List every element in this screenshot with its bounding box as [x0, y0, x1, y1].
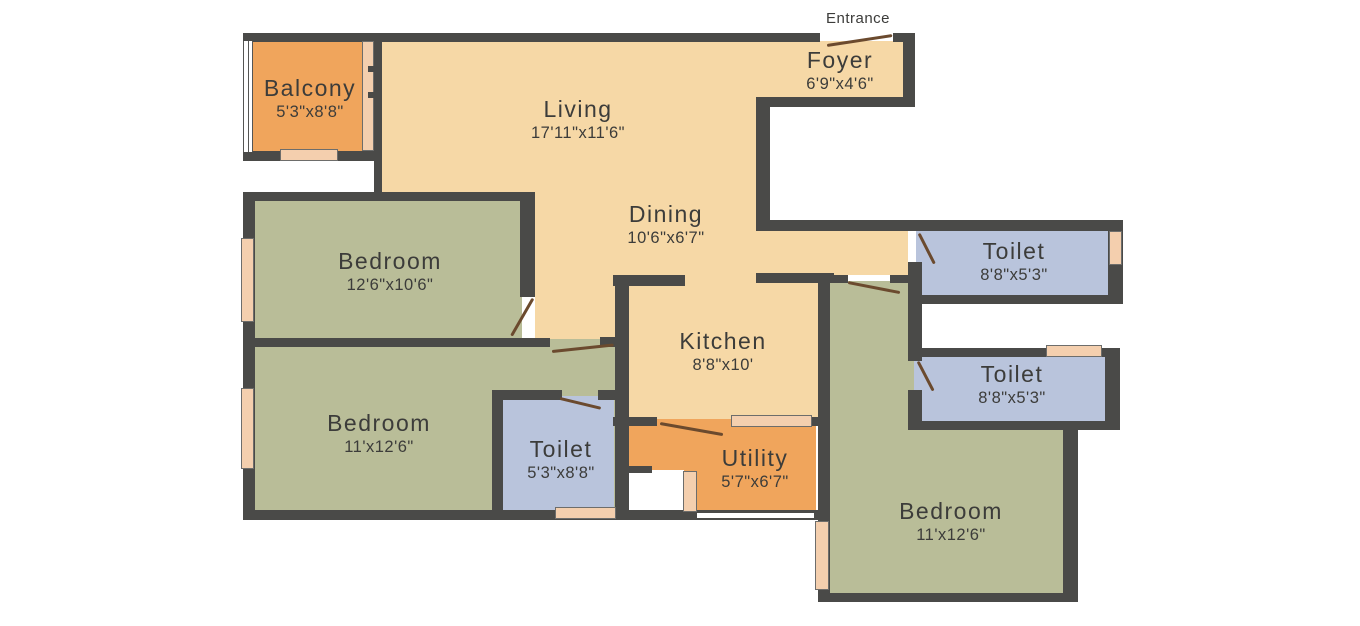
wall-segment	[1063, 430, 1078, 602]
room-label-bedroom2: Bedroom 11'x12'6"	[327, 412, 431, 458]
corridor-floor	[756, 228, 908, 275]
room-dims: 5'3"x8'8"	[264, 102, 356, 123]
floor-plan: Entrance Balcony 5'3"x8'8" Living 17'11"…	[0, 0, 1360, 626]
room-dims: 10'6"x6'7"	[627, 228, 704, 249]
bedroom3-window	[815, 521, 829, 590]
room-name: Kitchen	[679, 330, 766, 353]
room-name: Utility	[721, 447, 788, 470]
room-name: Balcony	[264, 77, 356, 100]
balcony-sill-window	[280, 149, 338, 161]
wall-segment	[903, 33, 915, 107]
toiletmid-window	[555, 507, 616, 519]
room-label-toilet1: Toilet 8'8"x5'3"	[980, 240, 1047, 286]
utility-bottom-window	[697, 511, 814, 520]
passage-floor	[535, 200, 615, 340]
room-name: Toilet	[980, 240, 1047, 263]
room-dims: 8'8"x5'3"	[978, 388, 1045, 409]
room-label-bedroom3: Bedroom 11'x12'6"	[899, 500, 1003, 546]
toilet2-top-window	[1046, 345, 1102, 357]
room-label-living: Living 17'11"x11'6"	[531, 98, 625, 144]
wall-segment	[908, 421, 1120, 430]
wall-segment	[243, 192, 535, 201]
room-dims: 17'11"x11'6"	[531, 123, 625, 144]
wall-segment	[243, 338, 550, 347]
room-dims: 5'7"x6'7"	[721, 472, 788, 493]
wall-segment	[243, 33, 820, 42]
balcony-left-window	[243, 41, 253, 152]
wall-segment	[756, 97, 915, 107]
utility-notch-door	[683, 471, 697, 512]
room-label-foyer: Foyer 6'9"x4'6"	[806, 49, 873, 95]
room-bedroom3-floor-upper	[828, 281, 916, 432]
room-name: Bedroom	[899, 500, 1003, 523]
wall-segment	[1105, 348, 1120, 430]
wall-segment	[818, 593, 1078, 602]
wall-segment	[598, 390, 620, 400]
wall-segment	[628, 466, 652, 473]
wall-segment	[492, 390, 503, 516]
room-name: Dining	[627, 203, 704, 226]
room-dims: 5'3"x8'8"	[527, 463, 594, 484]
room-dims: 12'6"x10'6"	[338, 275, 442, 296]
room-dims: 11'x12'6"	[899, 525, 1003, 546]
room-dims: 11'x12'6"	[327, 437, 431, 458]
utility-counter-window	[731, 415, 812, 427]
bedroom1-window	[241, 238, 254, 322]
room-name: Bedroom	[338, 250, 442, 273]
wall-segment	[756, 273, 834, 283]
toilet1-right-window	[1109, 231, 1122, 265]
room-name: Foyer	[806, 49, 873, 72]
room-label-toilet2: Toilet 8'8"x5'3"	[978, 363, 1045, 409]
wall-segment	[756, 220, 1123, 231]
wall-segment	[613, 417, 657, 426]
room-dims: 8'8"x5'3"	[980, 265, 1047, 286]
room-name: Living	[531, 98, 625, 121]
wall-segment	[756, 97, 770, 228]
room-label-kitchen: Kitchen 8'8"x10'	[679, 330, 766, 376]
room-name: Bedroom	[327, 412, 431, 435]
wall-segment	[834, 275, 848, 283]
wall-segment	[374, 38, 382, 192]
slider-tick	[368, 66, 376, 72]
room-label-utility: Utility 5'7"x6'7"	[721, 447, 788, 493]
room-dims: 8'8"x10'	[679, 355, 766, 376]
room-label-balcony: Balcony 5'3"x8'8"	[264, 77, 356, 123]
wall-segment	[890, 275, 914, 283]
room-name: Toilet	[527, 438, 594, 461]
utility-notch	[628, 470, 684, 512]
wall-segment	[520, 192, 535, 297]
room-name: Toilet	[978, 363, 1045, 386]
bedroom2-window	[241, 388, 254, 469]
room-label-toiletmid: Toilet 5'3"x8'8"	[527, 438, 594, 484]
entrance-label: Entrance	[826, 10, 890, 27]
wall-segment	[908, 295, 1123, 304]
room-label-bedroom1: Bedroom 12'6"x10'6"	[338, 250, 442, 296]
slider-tick	[368, 92, 376, 98]
room-dims: 6'9"x4'6"	[806, 74, 873, 95]
room-label-dining: Dining 10'6"x6'7"	[627, 203, 704, 249]
